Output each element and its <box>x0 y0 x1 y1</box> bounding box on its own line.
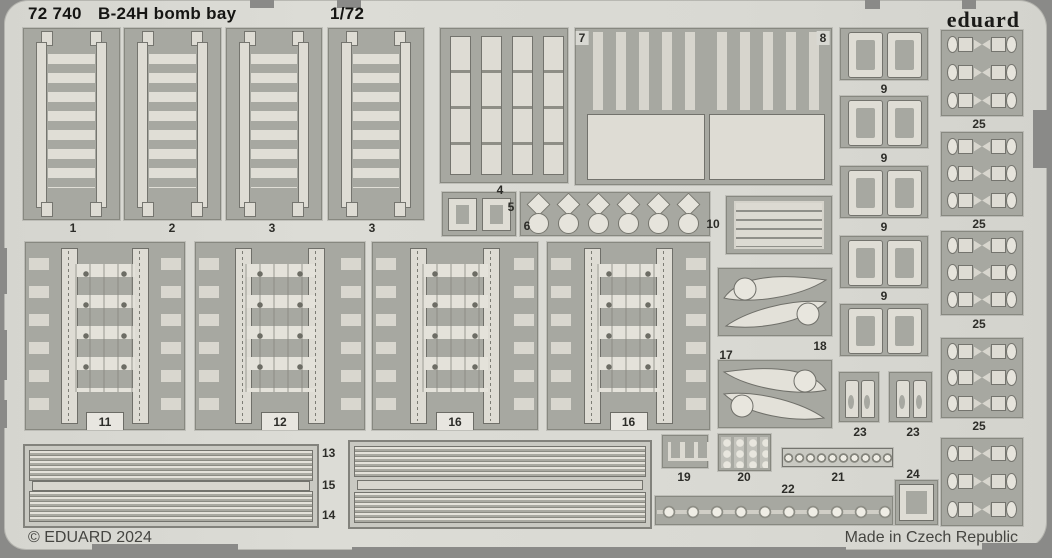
part-label-13: 13 <box>322 447 335 459</box>
pe-part-7-8-combs <box>575 28 832 185</box>
pe-part-rack-16a: 16 <box>372 242 538 430</box>
part-label-16b: 16 <box>622 416 635 428</box>
catalog-number: 72 740 <box>28 4 82 24</box>
edge-notch <box>1033 110 1052 168</box>
pe-part-4-strips <box>440 28 568 183</box>
edge-notch <box>0 330 7 380</box>
pe-part-9-group <box>840 166 928 218</box>
pe-part-25-group <box>941 132 1023 216</box>
part-label-2: 2 <box>169 222 176 234</box>
blade-shapes <box>718 268 832 336</box>
pe-part-corrugated-panel <box>348 440 652 529</box>
pe-part-ladder-1 <box>23 28 120 220</box>
part-label-14: 14 <box>322 509 335 521</box>
pe-part-25-group <box>941 30 1023 116</box>
pe-part-21-disc-strip <box>782 448 893 467</box>
pe-part-23a <box>839 372 879 422</box>
pe-part-9-group <box>840 236 928 288</box>
part-label-4: 4 <box>497 184 504 196</box>
pe-part-22-rosette-strip <box>655 496 893 525</box>
edge-notch <box>0 248 7 294</box>
part-label-23b: 23 <box>906 426 919 438</box>
part-label-25a: 25 <box>972 118 985 130</box>
pe-part-rack-12: 12 <box>195 242 365 430</box>
part-label-9d: 9 <box>881 290 888 302</box>
pe-part-13-15-14-panel <box>23 444 319 528</box>
made-in: Made in Czech Republic <box>845 529 1018 547</box>
pe-part-24-frame <box>895 480 938 525</box>
part-label-11: 11 <box>99 416 112 428</box>
part-label-9c: 9 <box>881 221 888 233</box>
part-label-9b: 9 <box>881 152 888 164</box>
part-label-8: 8 <box>817 31 830 45</box>
pe-part-10-louver <box>726 196 832 254</box>
part-label-20: 20 <box>737 471 750 483</box>
part-label-18: 18 <box>813 340 826 352</box>
part-label-23a: 23 <box>853 426 866 438</box>
part-label-6: 6 <box>524 220 531 232</box>
pe-part-9-group <box>840 96 928 148</box>
blade-shapes <box>718 360 832 428</box>
part-label-5: 5 <box>508 201 515 213</box>
scale: 1/72 <box>330 4 364 24</box>
pe-part-5-chain <box>520 192 710 236</box>
part-label-12: 12 <box>273 416 286 428</box>
part-label-1: 1 <box>70 222 77 234</box>
pe-part-rack-16b: 16 <box>547 242 710 430</box>
pe-part-25-group <box>941 338 1023 418</box>
part-label-25c: 25 <box>972 318 985 330</box>
pe-part-6-squares <box>442 192 516 236</box>
part-label-17: 17 <box>719 349 732 361</box>
part-label-3b: 3 <box>369 222 376 234</box>
pe-part-20-rivet-grid <box>718 434 771 471</box>
pe-part-18-blades <box>718 268 832 336</box>
part-label-10: 10 <box>706 218 719 230</box>
part-label-24: 24 <box>906 468 919 480</box>
part-label-19: 19 <box>677 471 690 483</box>
edge-notch <box>352 547 846 558</box>
pe-part-17-blades <box>718 360 832 428</box>
edge-notch <box>250 0 274 8</box>
part-label-16a: 16 <box>448 416 461 428</box>
part-label-3a: 3 <box>269 222 276 234</box>
part-label-22: 22 <box>781 483 794 495</box>
pe-part-23b <box>889 372 932 422</box>
edge-notch <box>865 0 880 9</box>
part-label-25d: 25 <box>972 420 985 432</box>
copyright: © EDUARD 2024 <box>28 529 152 547</box>
pe-part-rack-11: 11 <box>25 242 185 430</box>
photoetch-sheet-scan: 72 740 B-24H bomb bay 1/72 eduard 1 2 3 … <box>0 0 1052 558</box>
pe-part-ladder-3a <box>226 28 322 220</box>
pe-part-25-group <box>941 231 1023 315</box>
sheet-title: B-24H bomb bay <box>98 4 236 24</box>
part-label-9a: 9 <box>881 83 888 95</box>
edge-notch <box>0 400 7 428</box>
part-label-25b: 25 <box>972 218 985 230</box>
pe-part-9-group <box>840 304 928 356</box>
pe-part-ladder-3b <box>328 28 424 220</box>
pe-part-9-group <box>840 28 928 80</box>
part-label-7: 7 <box>576 31 589 45</box>
part-label-15: 15 <box>322 479 335 491</box>
pe-part-19-brackets <box>662 435 708 468</box>
pe-part-25-group <box>941 438 1023 526</box>
part-label-21: 21 <box>831 471 844 483</box>
pe-part-ladder-2 <box>124 28 221 220</box>
